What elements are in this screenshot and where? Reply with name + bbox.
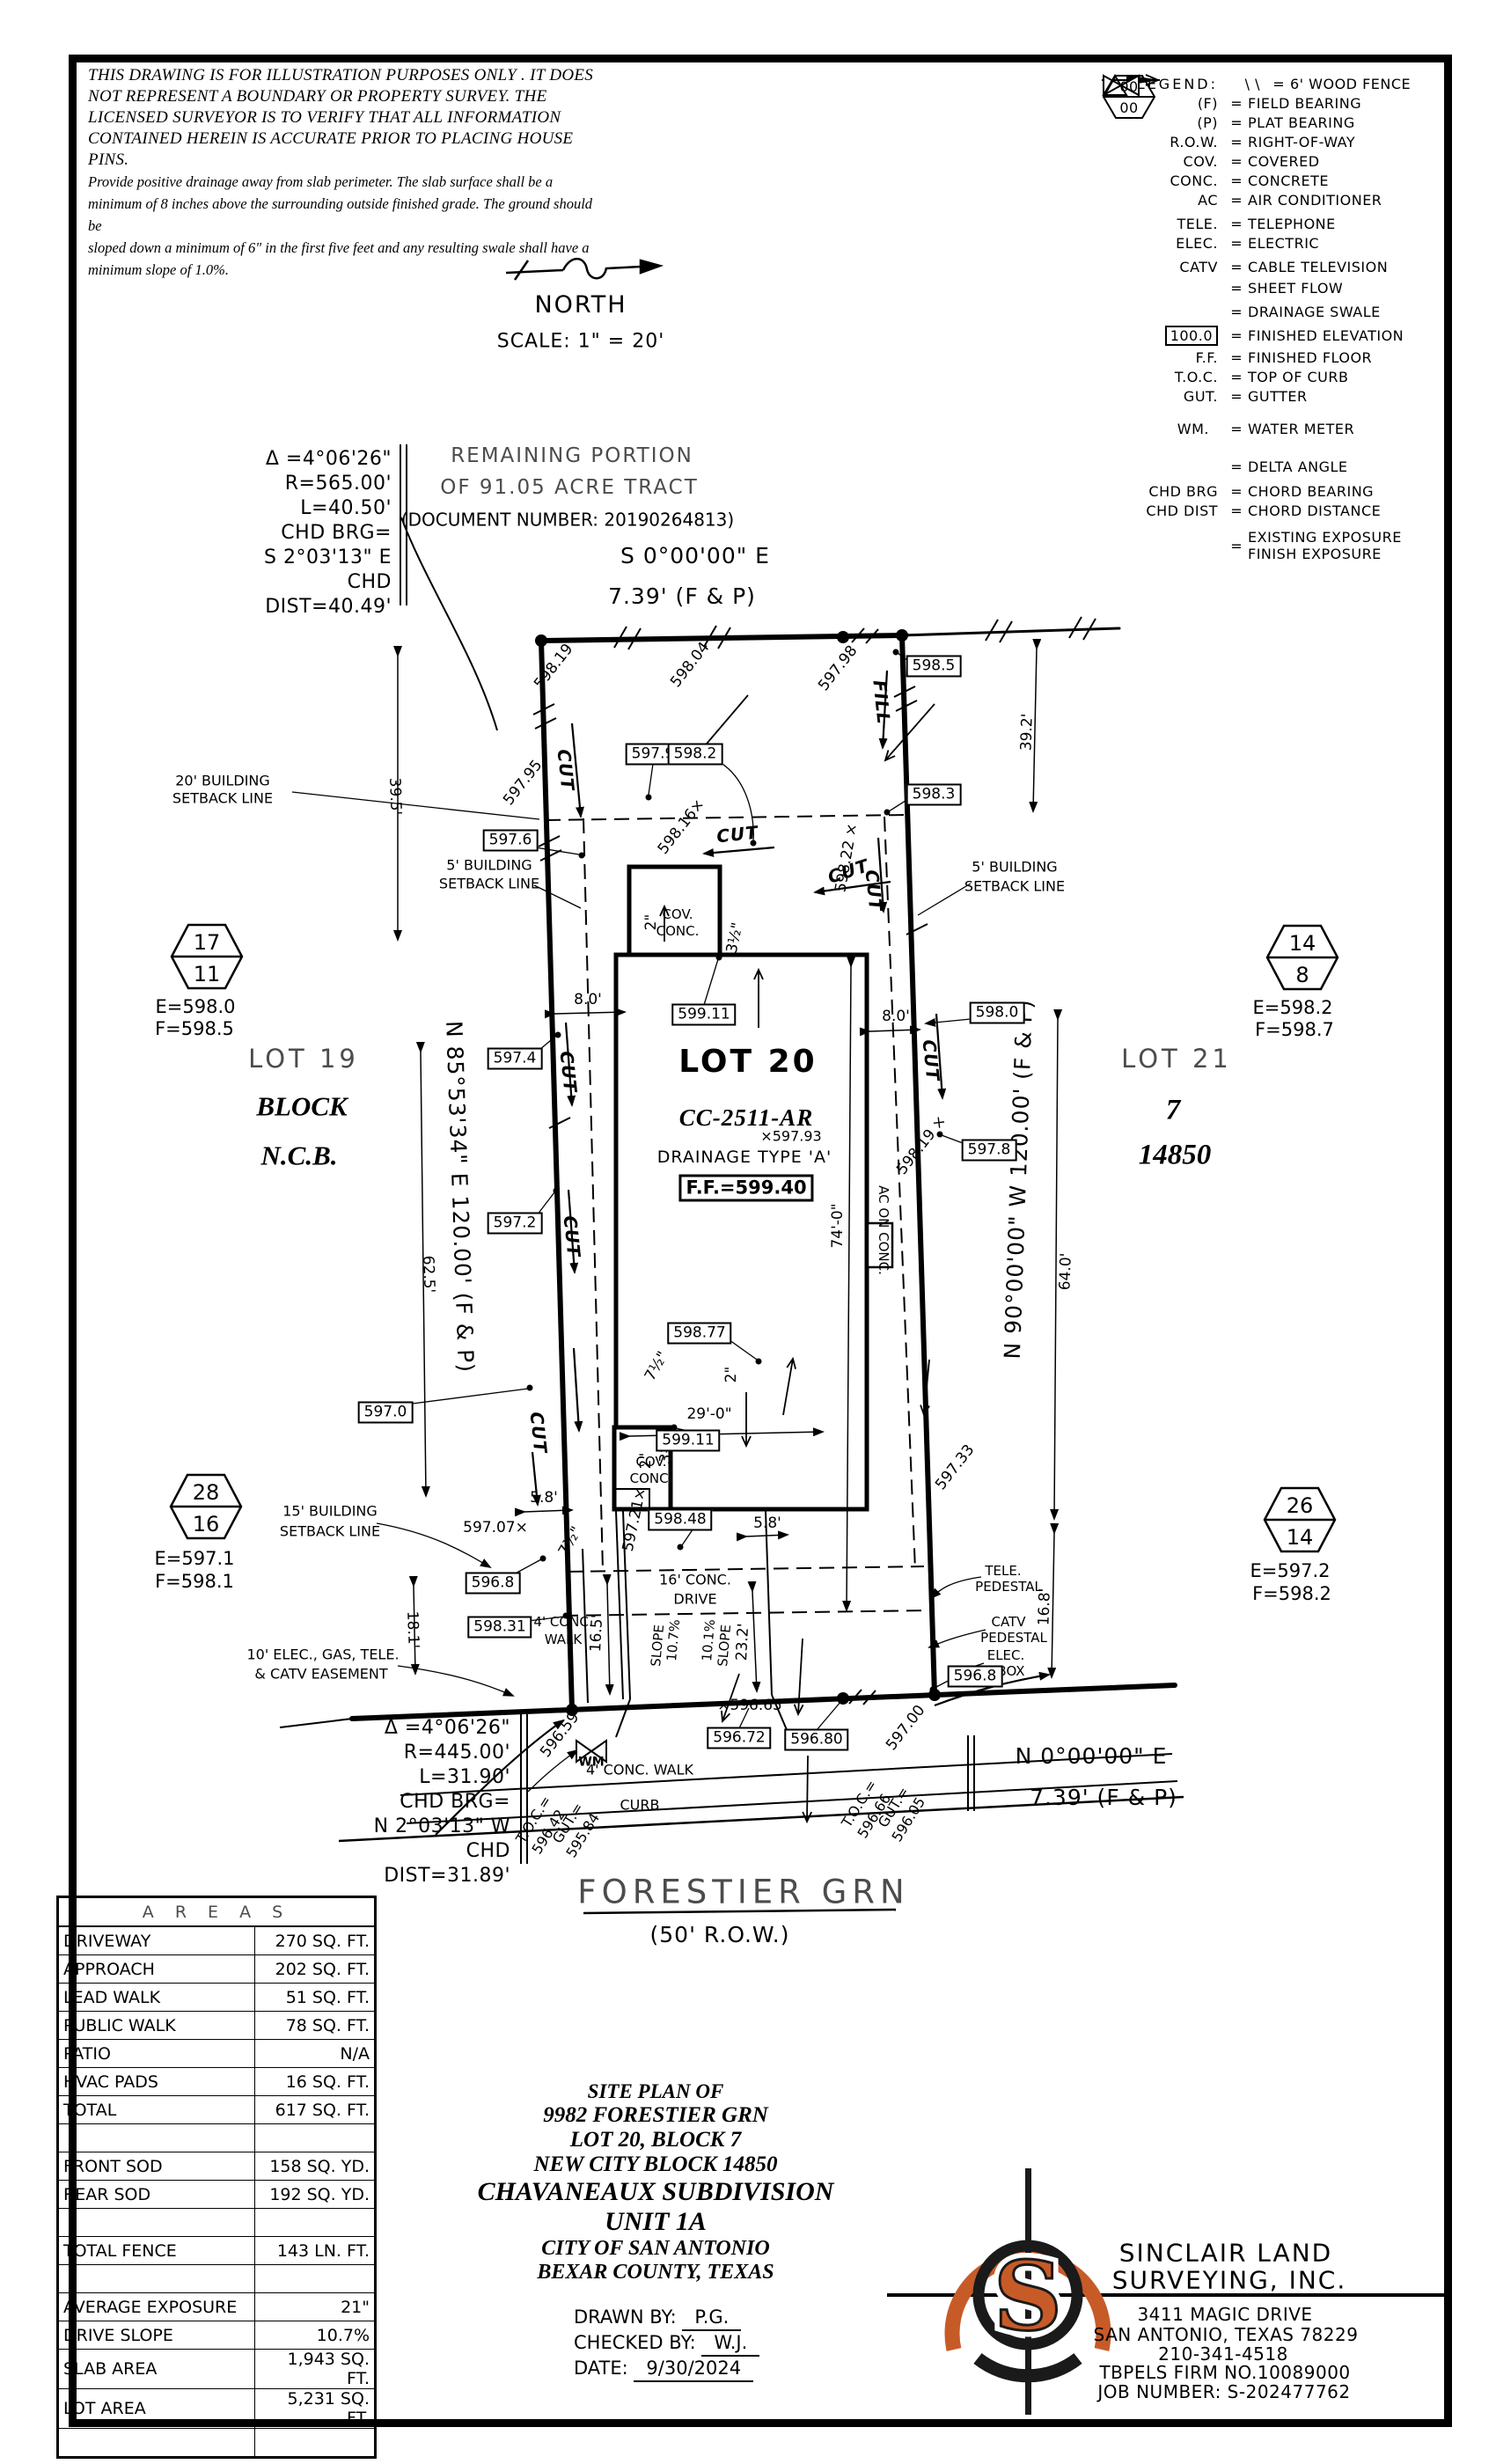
- legend-desc: COVERED: [1248, 153, 1450, 170]
- boxed-elevation: 597.6: [483, 830, 539, 852]
- legend-desc: FINISHED ELEVATION: [1248, 327, 1450, 344]
- easement-label2: & CATV EASEMENT: [254, 1668, 387, 1683]
- bearing-top-dist: 7.39' (F & P): [608, 585, 756, 608]
- dimension-label: 64.0': [1058, 1252, 1074, 1290]
- lot19-block: BLOCK: [256, 1093, 347, 1122]
- table-row: [58, 2124, 376, 2152]
- date-value: 9/30/2024: [634, 2357, 753, 2382]
- dimension-label: 62.5': [419, 1255, 436, 1293]
- existing-exposure-value: E=597.2: [1250, 1561, 1331, 1580]
- boxed-elevation: 596.80: [784, 1729, 848, 1751]
- dimension-label: 16.5': [589, 1614, 606, 1652]
- elec-box-label: ELEC.: [987, 1649, 1025, 1663]
- bearing-bottom-dist: 7.39' (F & P): [1030, 1786, 1177, 1809]
- legend-eq: =: [1225, 483, 1248, 500]
- legend: LEGEND: \ \ = 6' WOOD FENCE (F)=FIELD BE…: [1102, 74, 1450, 571]
- legend-desc: CHORD DISTANCE: [1248, 502, 1450, 519]
- logo-letter: S: [994, 2241, 1062, 2352]
- curve-line: S 2°03'13" E: [220, 546, 392, 570]
- finished-floor-elevation: F.F.=599.40: [678, 1175, 813, 1202]
- boxed-elevation: 599.11: [656, 1430, 720, 1452]
- ac-on-concrete-label: AC ON CONC.: [876, 1185, 890, 1275]
- area-label: TOTAL: [58, 2096, 255, 2124]
- job-number: JOB NUMBER: S-202477762: [1097, 2381, 1350, 2402]
- curve-line: Δ =4°06'26": [334, 1716, 510, 1741]
- water-meter-label: WM: [578, 1756, 604, 1770]
- exposure-marker-14-8: 148: [1265, 924, 1339, 991]
- disclaimer-line: Provide positive drainage away from slab…: [88, 171, 607, 193]
- cut-label: CUT: [919, 1038, 944, 1082]
- legend-sym: CHD DIST: [1102, 502, 1225, 519]
- dimension-label: 2": [644, 914, 660, 931]
- lot20-plan-code: CC-2511-AR: [679, 1105, 814, 1130]
- curve-line: CHD BRG=: [220, 521, 392, 546]
- boxed-elevation: 598.48: [648, 1509, 712, 1531]
- boxed-elevation: 598.31: [467, 1617, 532, 1639]
- area-value: N/A: [254, 2040, 375, 2068]
- legend-eq: =: [1225, 538, 1248, 554]
- curve-line: L=40.50': [220, 496, 392, 521]
- legend-desc: TOP OF CURB: [1248, 369, 1450, 385]
- table-row: DRIVE SLOPE10.7%: [58, 2321, 376, 2350]
- cut-label: CUT: [715, 822, 759, 847]
- legend-eq: =: [1225, 235, 1248, 252]
- area-label: [58, 2124, 255, 2152]
- dimension-label: 8.0': [882, 1009, 910, 1025]
- area-label: [58, 2429, 255, 2458]
- date-label: DATE:: [574, 2358, 628, 2379]
- title-block: SITE PLAN OF 9982 FORESTIER GRN LOT 20, …: [453, 2080, 858, 2284]
- tract-line: REMAINING PORTION: [451, 445, 693, 466]
- tract-document-number: (DOCUMENT NUMBER: 20190264813): [401, 511, 734, 530]
- legend-eq: =: [1225, 192, 1248, 209]
- legend-sym: F.F.: [1102, 349, 1225, 366]
- area-value: 10.7%: [254, 2321, 375, 2350]
- marker-top: 28: [193, 1480, 220, 1505]
- legend-desc: TELEPHONE: [1248, 216, 1450, 232]
- legend-eq: =: [1225, 259, 1248, 275]
- legend-eq: =: [1225, 304, 1248, 320]
- area-value: 192 SQ. YD.: [254, 2181, 375, 2209]
- table-row: DRIVEWAY270 SQ. FT.: [58, 1926, 376, 1955]
- cut-label: CUT: [556, 1050, 582, 1094]
- firm-address2: SAN ANTONIO, TEXAS 78229: [1094, 2324, 1359, 2345]
- cut-label: CUT: [526, 1411, 552, 1455]
- boxed-elevation: 599.11: [671, 1004, 736, 1026]
- disclaimer-line: NOT REPRESENT A BOUNDARY OR PROPERTY SUR…: [88, 86, 607, 107]
- lot20-drainage-type: DRAINAGE TYPE 'A': [657, 1149, 832, 1167]
- legend-desc: DRAINAGE SWALE: [1248, 304, 1450, 320]
- survey-sheet: THIS DRAWING IS FOR ILLUSTRATION PURPOSE…: [0, 0, 1496, 2464]
- dimension-label: 8.0': [574, 993, 602, 1008]
- covered-concrete-label2: CONC.: [656, 925, 700, 939]
- curve-line: R=565.00': [220, 472, 392, 496]
- table-row: HVAC PADS16 SQ. FT.: [58, 2068, 376, 2096]
- legend-sym: CHD BRG: [1102, 483, 1225, 500]
- lead-walk-label2: WALK: [545, 1633, 582, 1647]
- marker-top: 17: [194, 930, 221, 955]
- spot-elevation: 597.07×: [463, 1521, 528, 1536]
- exposure-marker-26-14: 2614: [1263, 1486, 1337, 1553]
- setback-15-label2: SETBACK LINE: [280, 1525, 380, 1540]
- existing-exposure-value: E=598.2: [1253, 998, 1333, 1017]
- legend-sym: GUT.: [1102, 388, 1225, 405]
- legend-eq: =: [1225, 327, 1248, 344]
- table-row: AVERAGE EXPOSURE21": [58, 2293, 376, 2321]
- lot21-block: 7: [1166, 1096, 1181, 1126]
- marker-bottom: 14: [1287, 1525, 1314, 1550]
- site-address: 9982 FORESTIER GRN: [453, 2103, 858, 2128]
- legend-sym: R.O.W.: [1102, 134, 1225, 150]
- dimension-label: 23.2': [735, 1623, 752, 1661]
- boxed-elevation: 598.3: [906, 784, 962, 806]
- legend-sym: CATV: [1102, 259, 1225, 275]
- legend-sym: AC: [1102, 192, 1225, 209]
- area-label: APPROACH: [58, 1955, 255, 1984]
- checked-by-value: W.J.: [701, 2331, 759, 2357]
- legend-desc: CONCRETE: [1248, 172, 1450, 189]
- exposure-marker-28-16: 2816: [169, 1473, 243, 1540]
- areas-table: A R E A S DRIVEWAY270 SQ. FT. APPROACH20…: [56, 1896, 377, 2459]
- area-value: 78 SQ. FT.: [254, 2012, 375, 2040]
- table-row: PATION/A: [58, 2040, 376, 2068]
- marker-bottom: 8: [1295, 963, 1309, 987]
- dimension-label: 2": [639, 1453, 655, 1470]
- legend-desc: AIR CONDITIONER: [1248, 192, 1450, 209]
- legend-desc: PLAT BEARING: [1248, 114, 1450, 131]
- legend-sym: ELEC.: [1102, 235, 1225, 252]
- cut-label: CUT: [554, 748, 579, 792]
- drive-label: 16' CONC.: [659, 1573, 731, 1588]
- marker-top: 14: [1289, 931, 1316, 956]
- legend-desc: 6' WOOD FENCE: [1290, 76, 1450, 92]
- boxed-elevation: 598.77: [667, 1323, 731, 1345]
- lot21-label: LOT 21: [1121, 1045, 1232, 1072]
- curve-data-bottom: Δ =4°06'26" R=445.00' L=31.90' CHD BRG= …: [334, 1716, 510, 1888]
- checked-by-label: CHECKED BY:: [574, 2332, 696, 2353]
- legend-desc: FIELD BEARING: [1248, 95, 1450, 112]
- legend-eq: =: [1225, 458, 1248, 475]
- legend-desc: SHEET FLOW: [1248, 280, 1450, 297]
- area-value: [254, 2209, 375, 2237]
- street-name: FORESTIER GRN: [577, 1876, 909, 1910]
- boxed-elevation: 596.8: [948, 1666, 1003, 1688]
- lot21-ncb: 14850: [1139, 1140, 1212, 1171]
- scale-label: SCALE: 1" = 20': [497, 331, 665, 351]
- catv-pedestal-label2: PEDESTAL: [980, 1632, 1047, 1646]
- curve-data-top: Δ =4°06'26" R=565.00' L=40.50' CHD BRG= …: [220, 447, 392, 620]
- tele-pedestal-label: TELE.: [985, 1565, 1021, 1579]
- dimension-label: 18.1': [403, 1610, 420, 1648]
- legend-sym: CONC.: [1102, 172, 1225, 189]
- table-row: SLAB AREA1,943 SQ. FT.: [58, 2350, 376, 2389]
- table-row: LOT AREA5,231 SQ. FT.: [58, 2389, 376, 2429]
- exposure-bottom: 00: [1119, 99, 1138, 116]
- legend-eq: =: [1225, 280, 1248, 297]
- dimension-label: 2": [724, 1367, 740, 1383]
- curve-line: L=31.90': [334, 1765, 510, 1790]
- legend-eq: =: [1225, 502, 1248, 519]
- boxed-elevation: 597.2: [488, 1213, 543, 1235]
- signoff-block: DRAWN BY: P.G. CHECKED BY: W.J. DATE: 9/…: [574, 2306, 759, 2382]
- dimension-label: 39.2': [1019, 713, 1036, 751]
- lot19-label: LOT 19: [248, 1045, 359, 1072]
- boxed-elevation: 596.8: [466, 1573, 521, 1595]
- north-label: NORTH: [534, 293, 627, 318]
- covered-concrete-label2: CONC.: [630, 1472, 673, 1486]
- disclaimer-line: LICENSED SURVEYOR IS TO VERIFY THAT ALL …: [88, 107, 607, 128]
- setback-20-label2: SETBACK LINE: [172, 792, 273, 807]
- title-line: SITE PLAN OF: [453, 2080, 858, 2103]
- disclaimer-line: minimum slope of 1.0%.: [88, 259, 607, 281]
- area-label: LOT AREA: [58, 2389, 255, 2429]
- curve-line: R=445.00': [334, 1741, 510, 1765]
- areas-table-title: A R E A S: [58, 1897, 376, 1927]
- legend-eq: =: [1225, 421, 1248, 437]
- legend-eq: =: [1225, 216, 1248, 232]
- spot-elevation: ×597.93: [760, 1130, 821, 1145]
- area-value: [254, 2265, 375, 2293]
- lead-walk-label: 4' CONC.: [533, 1616, 592, 1630]
- setback-5-left-label2: SETBACK LINE: [439, 877, 539, 892]
- legend-desc: DELTA ANGLE: [1248, 458, 1450, 475]
- marker-bottom: 16: [193, 1512, 220, 1536]
- firm-name: SINCLAIR LAND: [1119, 2239, 1332, 2268]
- finish-exposure-value: F=598.7: [1255, 1020, 1334, 1039]
- exposure-marker-17-11: 1711: [170, 923, 244, 990]
- table-row: [58, 2209, 376, 2237]
- legend-eq: =: [1225, 153, 1248, 170]
- legend-desc: WATER METER: [1248, 421, 1450, 437]
- lot19-ncb: N.C.B.: [261, 1142, 338, 1171]
- cut-label: CUT: [862, 869, 887, 913]
- exposure-top: 00: [1119, 78, 1138, 95]
- curve-line: CHD DIST=40.49': [220, 570, 392, 620]
- catv-pedestal-label: CATV: [992, 1616, 1026, 1630]
- legend-eq: =: [1225, 95, 1248, 112]
- dimension-label: 29'-0": [686, 1407, 731, 1423]
- curve-line: CHD BRG=: [334, 1790, 510, 1815]
- boxed-elevation: 597.8: [962, 1140, 1017, 1162]
- area-label: PATIO: [58, 2040, 255, 2068]
- street-row-width: (50' R.O.W.): [650, 1924, 790, 1947]
- setback-5-right-label2: SETBACK LINE: [964, 880, 1065, 895]
- disclaimer-line: THIS DRAWING IS FOR ILLUSTRATION PURPOSE…: [88, 65, 607, 86]
- boxed-elevation: 598.5: [906, 656, 962, 678]
- lot20-label: LOT 20: [678, 1045, 817, 1079]
- firm-name2: SURVEYING, INC.: [1112, 2266, 1347, 2295]
- finish-exposure-value: F=598.5: [155, 1019, 234, 1038]
- disclaimer-line: minimum of 8 inches above the surroundin…: [88, 193, 607, 237]
- area-label: LEAD WALK: [58, 1984, 255, 2012]
- bearing-bottom: N 0°00'00" E: [1016, 1745, 1168, 1768]
- area-label: FRONT SOD: [58, 2152, 255, 2181]
- legend-sym: WM.: [1102, 421, 1218, 437]
- area-value: [254, 2429, 375, 2458]
- curve-line: N 2°03'13" W: [334, 1815, 510, 1839]
- legend-desc: CABLE TELEVISION: [1248, 259, 1450, 275]
- covered-concrete-label: COV.: [662, 908, 693, 922]
- table-row: FRONT SOD158 SQ. YD.: [58, 2152, 376, 2181]
- table-row: [58, 2265, 376, 2293]
- legend-sym: TELE.: [1102, 216, 1225, 232]
- drawn-by-value: P.G.: [682, 2306, 741, 2331]
- legend-desc-line: FINISH EXPOSURE: [1248, 546, 1450, 562]
- drive-label2: DRIVE: [673, 1593, 716, 1608]
- area-label: [58, 2265, 255, 2293]
- area-value: 202 SQ. FT.: [254, 1955, 375, 1984]
- legend-desc: GUTTER: [1248, 388, 1450, 405]
- legend-desc-line: EXISTING EXPOSURE: [1248, 529, 1450, 546]
- area-value: 143 LN. FT.: [254, 2237, 375, 2265]
- legend-eq: =: [1225, 134, 1248, 150]
- county-line: BEXAR COUNTY, TEXAS: [453, 2261, 858, 2284]
- subdivision-name: CHAVANEAUX SUBDIVISION: [453, 2177, 858, 2207]
- area-label: SLAB AREA: [58, 2350, 255, 2389]
- legend-eq: =: [1267, 76, 1290, 92]
- area-value: [254, 2124, 375, 2152]
- boxed-elevation: 598.0: [970, 1002, 1025, 1024]
- area-value: 270 SQ. FT.: [254, 1926, 375, 1955]
- legend-sym: COV.: [1102, 153, 1225, 170]
- firm-license: TBPELS FIRM NO.10089000: [1099, 2362, 1350, 2383]
- legend-sym: T.O.C.: [1102, 369, 1225, 385]
- lot-block-line: LOT 20, BLOCK 7: [453, 2128, 858, 2152]
- table-row: LEAD WALK51 SQ. FT.: [58, 1984, 376, 2012]
- disclaimer-note: THIS DRAWING IS FOR ILLUSTRATION PURPOSE…: [88, 65, 607, 281]
- dimension-label: 5.8': [753, 1516, 781, 1532]
- wood-fence-icon: \ \: [1225, 76, 1267, 92]
- area-value: 158 SQ. YD.: [254, 2152, 375, 2181]
- existing-exposure-value: E=597.1: [155, 1549, 235, 1568]
- table-row: APPROACH202 SQ. FT.: [58, 1955, 376, 1984]
- setback-5-right-label: 5' BUILDING: [972, 861, 1057, 876]
- boxed-elevation: 598.2: [668, 744, 723, 766]
- finish-exposure-value: F=598.2: [1252, 1584, 1331, 1603]
- dimension-label: 39.5': [385, 777, 402, 815]
- legend-desc: EXISTING EXPOSUREFINISH EXPOSURE: [1248, 529, 1450, 562]
- legend-eq: =: [1225, 369, 1248, 385]
- boxed-elevation: 596.72: [707, 1727, 771, 1749]
- table-row: PUBLIC WALK78 SQ. FT.: [58, 2012, 376, 2040]
- area-value: 617 SQ. FT.: [254, 2096, 375, 2124]
- finish-exposure-value: F=598.1: [155, 1572, 234, 1591]
- area-label: [58, 2209, 255, 2237]
- legend-desc: ELECTRIC: [1248, 235, 1450, 252]
- table-row: TOTAL617 SQ. FT.: [58, 2096, 376, 2124]
- area-value: 1,943 SQ. FT.: [254, 2350, 375, 2389]
- unit-line: UNIT 1A: [453, 2207, 858, 2237]
- table-row: TOTAL FENCE143 LN. FT.: [58, 2237, 376, 2265]
- legend-desc: CHORD BEARING: [1248, 483, 1450, 500]
- easement-label: 10' ELEC., GAS, TELE.: [246, 1648, 399, 1663]
- firm-address: 3411 MAGIC DRIVE: [1137, 2304, 1312, 2325]
- area-label: DRIVEWAY: [58, 1926, 255, 1955]
- area-label: DRIVE SLOPE: [58, 2321, 255, 2350]
- legend-eq: =: [1225, 172, 1248, 189]
- area-value: 21": [254, 2293, 375, 2321]
- disclaimer-line: sloped down a minimum of 6" in the first…: [88, 237, 607, 259]
- legend-desc: RIGHT-OF-WAY: [1248, 134, 1450, 150]
- setback-20-label: 20' BUILDING: [175, 774, 270, 789]
- area-label: HVAC PADS: [58, 2068, 255, 2096]
- fill-label: FILL: [869, 679, 894, 726]
- area-value: 16 SQ. FT.: [254, 2068, 375, 2096]
- boxed-elevation: 597.4: [488, 1048, 543, 1070]
- water-meter-icon: WM.: [1102, 421, 1225, 437]
- spot-elevation: ×596.65: [717, 1698, 782, 1714]
- finished-elevation-box-icon: 100.0: [1102, 326, 1225, 346]
- legend-eq: =: [1225, 349, 1248, 366]
- area-label: PUBLIC WALK: [58, 2012, 255, 2040]
- dimension-label: 16.8': [1037, 1588, 1053, 1625]
- dimension-label: 5.8': [530, 1491, 558, 1507]
- area-label: TOTAL FENCE: [58, 2237, 255, 2265]
- disclaimer-line: CONTAINED HEREIN IS ACCURATE PRIOR TO PL…: [88, 128, 607, 171]
- cut-label: CUT: [560, 1214, 585, 1258]
- legend-sym: 100.0: [1165, 326, 1218, 346]
- tract-line: OF 91.05 ACRE TRACT: [440, 477, 699, 498]
- curve-line: Δ =4°06'26": [220, 447, 392, 472]
- new-city-block-line: NEW CITY BLOCK 14850: [453, 2152, 858, 2177]
- area-value: 51 SQ. FT.: [254, 1984, 375, 2012]
- area-label: AVERAGE EXPOSURE: [58, 2293, 255, 2321]
- setback-5-left-label: 5' BUILDING: [446, 859, 532, 874]
- table-row: REAR SOD192 SQ. YD.: [58, 2181, 376, 2209]
- legend-eq: =: [1225, 388, 1248, 405]
- area-label: REAR SOD: [58, 2181, 255, 2209]
- marker-top: 26: [1287, 1493, 1314, 1518]
- boxed-elevation: 597.0: [358, 1402, 414, 1424]
- bearing-top: S 0°00'00" E: [620, 545, 770, 568]
- city-line: CITY OF SAN ANTONIO: [453, 2237, 858, 2261]
- existing-exposure-value: E=598.0: [156, 997, 236, 1016]
- tele-pedestal-label2: PEDESTAL: [975, 1580, 1042, 1595]
- legend-eq: =: [1225, 114, 1248, 131]
- dimension-label: 74'-0": [831, 1203, 847, 1248]
- curb-label: CURB: [620, 1799, 660, 1814]
- curve-line: CHD DIST=31.89': [334, 1839, 510, 1888]
- table-row: [58, 2429, 376, 2458]
- drawn-by-label: DRAWN BY:: [574, 2306, 677, 2328]
- setback-15-label: 15' BUILDING: [282, 1505, 378, 1520]
- marker-bottom: 11: [194, 962, 221, 986]
- legend-desc: FINISHED FLOOR: [1248, 349, 1450, 366]
- area-value: 5,231 SQ. FT.: [254, 2389, 375, 2429]
